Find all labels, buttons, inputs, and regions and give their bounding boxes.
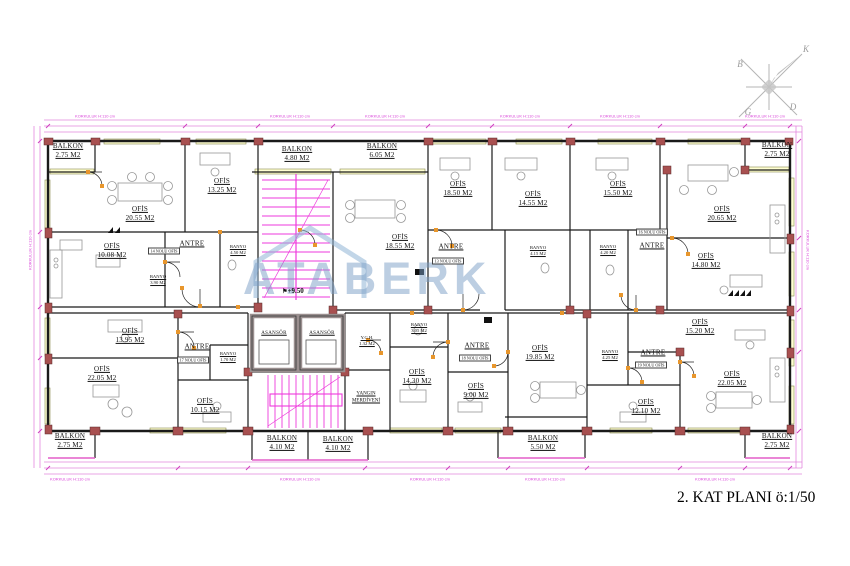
- room-label-ofis: OFİS14.30 M2: [403, 368, 432, 386]
- railing-note: KORKULUK H:110 cm: [500, 114, 540, 119]
- room-label-balkon: BALKON2.75 M2: [53, 142, 83, 160]
- room-label-ofis: OFİS14.55 M2: [519, 190, 548, 208]
- elevator-shafts: [252, 316, 343, 370]
- room-label-ofis: OFİS15.50 M2: [604, 180, 633, 198]
- banyo-label: BANYO4.15 M2: [530, 245, 546, 257]
- plan-title: 2. KAT PLANI ö:1/50: [677, 489, 815, 507]
- room-label-ofis: OFİS18.50 M2: [444, 180, 473, 198]
- banyo-label: BANYO3.90 M2: [150, 274, 166, 286]
- railing-note: KORKULUK H:110 cm: [75, 114, 115, 119]
- room-label-balkon: BALKON5.50 M2: [528, 434, 558, 452]
- elevation-marker: ⚑+9.50: [282, 287, 304, 297]
- room-label-ofis: OFİS18.55 M2: [386, 233, 415, 251]
- unit-number-box: 13 NOLU OFİS: [432, 258, 464, 265]
- compass-east-label: D: [790, 102, 797, 112]
- staircase-fire: [268, 375, 342, 428]
- room-label-ofis: OFİS20.55 M2: [126, 205, 155, 223]
- elevator-label: ASANSÖR: [309, 331, 334, 338]
- room-label-ofis: OFİS10.15 M2: [191, 397, 220, 415]
- antre-label: ANTRE: [185, 342, 210, 351]
- compass-west-label: B: [737, 59, 743, 69]
- room-label-balkon: BALKON2.75 M2: [55, 432, 85, 450]
- room-label-ofis: OFİS19.85 M2: [526, 344, 555, 362]
- antre-label: ANTRE: [641, 348, 666, 357]
- unit-number-box: 17 NOLU OFİS: [177, 357, 209, 364]
- railing-note: KORKULUK H:110 cm: [525, 477, 565, 482]
- banyo-label: BANYO4.50 M2: [230, 244, 246, 256]
- room-label-ofis: OFİS14.80 M2: [692, 252, 721, 270]
- room-label-balkon: BALKON4.10 M2: [267, 434, 297, 452]
- fire-stairs-label: YANGINMERDİVENİ: [352, 392, 380, 405]
- antre-label: ANTRE: [439, 242, 464, 251]
- room-label-ofis: OFİS9.00 M2: [463, 382, 488, 400]
- railing-note: KORKULUK H:110 cm: [695, 477, 735, 482]
- ygh-label: Y.G.H.1.32 M2: [359, 335, 375, 347]
- antre-label: ANTRE: [465, 341, 490, 350]
- railing-note: KORKULUK H:110 cm: [280, 477, 320, 482]
- room-label-ofis: OFİS13.25 M2: [208, 177, 237, 195]
- room-label-ofis: OFİS13.95 M2: [116, 327, 145, 345]
- banyo-label: BANYO4.25 M2: [602, 349, 618, 361]
- banyo-label: BANYO4.20 M2: [600, 244, 616, 256]
- room-label-ofis: OFİS22.05 M2: [718, 370, 747, 388]
- room-label-ofis: OFİS20.65 M2: [708, 205, 737, 223]
- railing-note: KORKULUK H:110 cm: [365, 114, 405, 119]
- compass-north-label: K: [803, 44, 809, 54]
- room-label-ofis: OFİS22.05 M2: [88, 365, 117, 383]
- room-label-ofis: OFİS12.10 M2: [632, 398, 661, 416]
- room-label-balkon: BALKON6.05 M2: [367, 142, 397, 160]
- room-label-balkon: BALKON2.75 M2: [762, 432, 792, 450]
- unit-number-box: 18 NOLU OFİS: [459, 355, 491, 362]
- railing-note: KORKULUK H:110 cm: [410, 477, 450, 482]
- railing-note: KORKULUK H:110 cm: [600, 114, 640, 119]
- room-label-ofis: OFİS15.20 M2: [686, 318, 715, 336]
- banyo-label: BANYO3.05 M2: [411, 322, 427, 334]
- elevator-label: ASANSÖR: [261, 331, 286, 338]
- railing-note: KORKULUK H:110 cm: [270, 114, 310, 119]
- unit-number-box: 14 NOLU OFİS: [148, 248, 180, 255]
- unit-number-box: 16 NOLU OFİS: [636, 229, 668, 236]
- floor-plan-page: ATABERK BALKON2.75 M2 OFİS20.55 M2 OFİS1…: [0, 0, 850, 566]
- railing-note: KORKULUK H:110 cm: [806, 230, 811, 270]
- banyo-label: BANYO1.70 M2: [220, 351, 236, 363]
- antre-label: ANTRE: [640, 241, 665, 250]
- room-label-balkon: BALKON2.75 M2: [762, 141, 792, 159]
- railing-note: KORKULUK H:110 cm: [50, 477, 90, 482]
- room-label-balkon: BALKON4.10 M2: [323, 435, 353, 453]
- room-label-ofis: OFİS10.08 M2: [98, 242, 127, 260]
- unit-number-box: 19 NOLU OFİS: [635, 362, 667, 369]
- compass-south-label: G: [745, 107, 752, 117]
- room-label-balkon: BALKON4.80 M2: [282, 145, 312, 163]
- railing-note: KORKULUK H:110 cm: [28, 230, 33, 270]
- antre-label: ANTRE: [180, 239, 205, 248]
